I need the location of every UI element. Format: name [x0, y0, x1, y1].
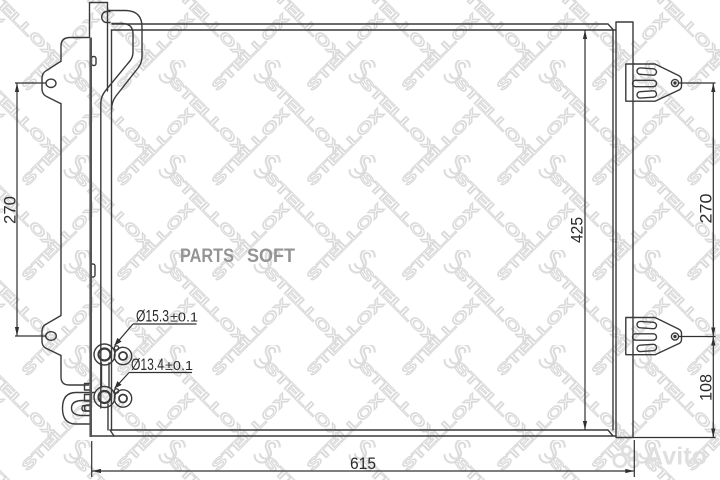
svg-text:±0.1: ±0.1 [165, 359, 193, 373]
svg-text:615: 615 [350, 454, 376, 473]
svg-text:270: 270 [698, 194, 716, 224]
svg-text:108: 108 [698, 374, 716, 401]
svg-text:SOFT: SOFT [247, 246, 295, 267]
svg-text:270: 270 [2, 196, 20, 224]
svg-text:Ø15.3: Ø15.3 [136, 308, 169, 326]
svg-text:Avito: Avito [645, 443, 707, 471]
svg-text:Ø13.4: Ø13.4 [131, 356, 164, 374]
svg-text:±0.1: ±0.1 [170, 311, 198, 325]
svg-text:425: 425 [569, 217, 587, 243]
svg-text:PARTS: PARTS [180, 246, 234, 267]
